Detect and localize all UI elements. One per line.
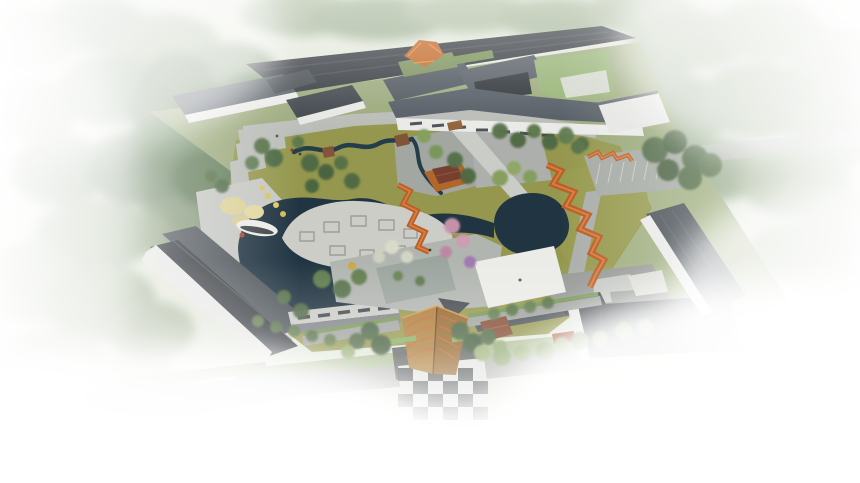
scene-layers [0,0,860,483]
render-canvas [0,0,860,483]
haze-veil [0,0,860,483]
aerial-site-render [0,0,860,483]
